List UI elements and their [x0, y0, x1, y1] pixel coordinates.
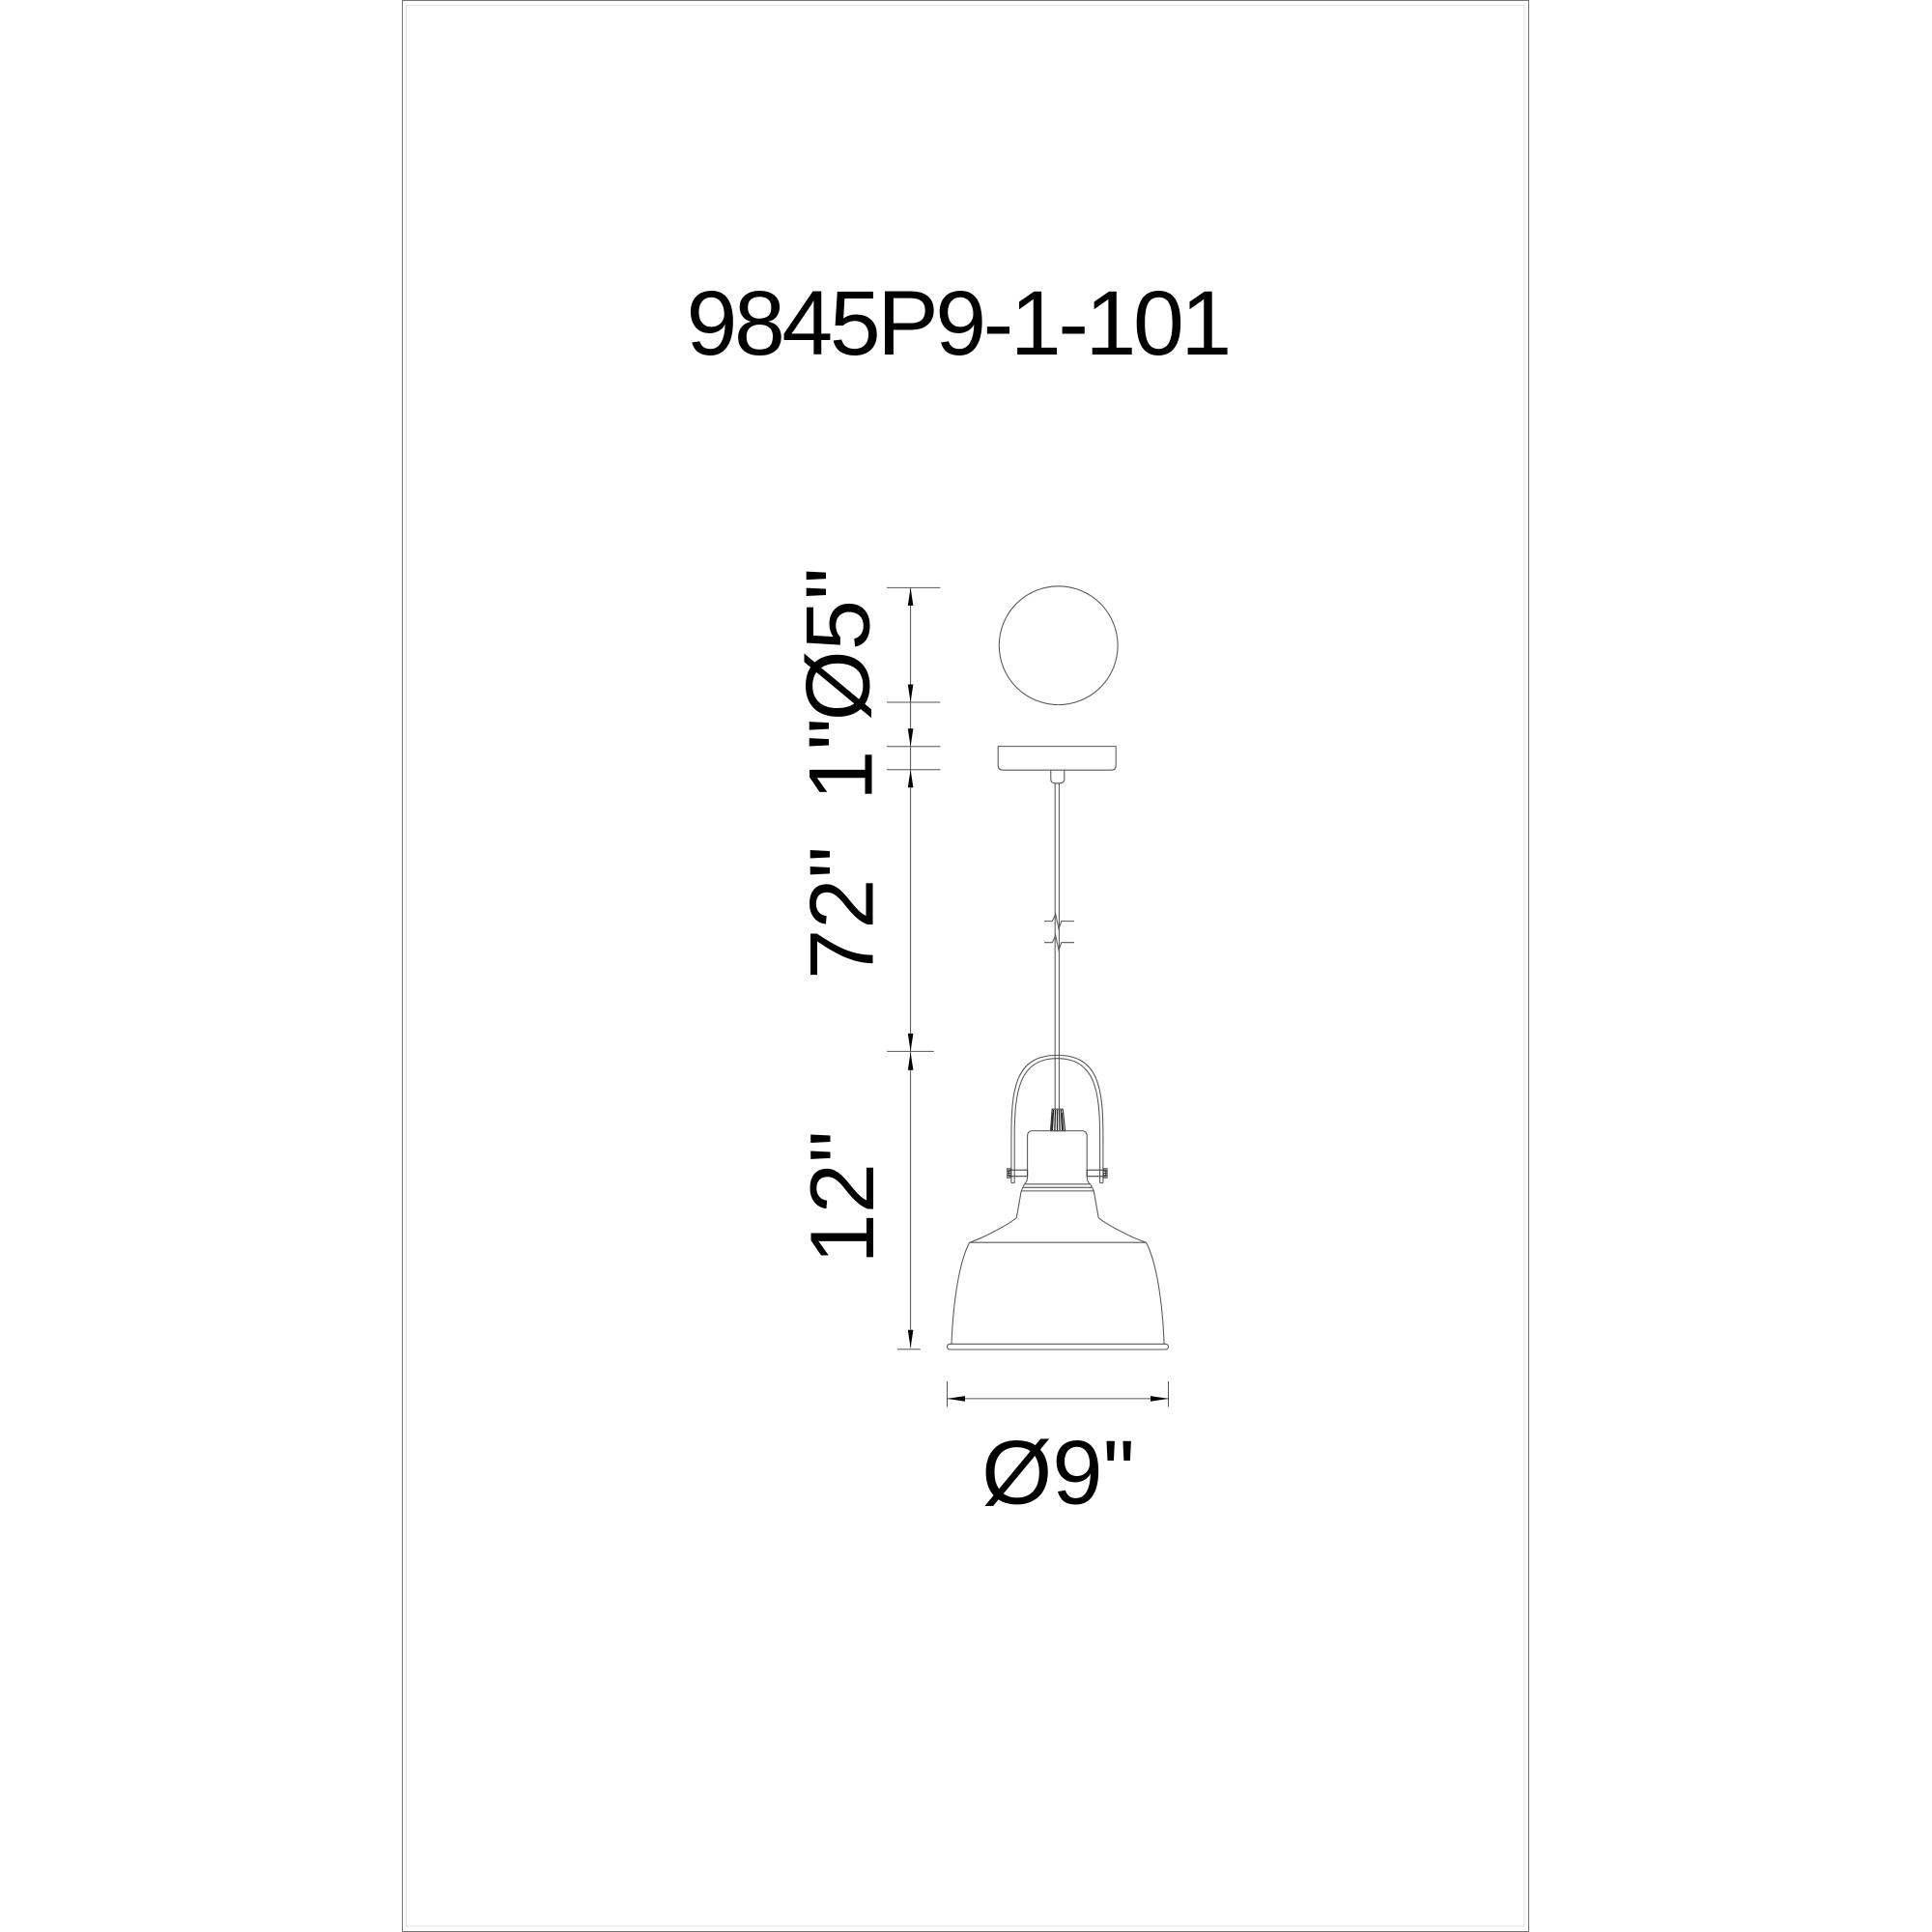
svg-text:12": 12" [791, 1131, 893, 1264]
svg-text:Ø9": Ø9" [981, 1422, 1135, 1523]
svg-text:72": 72" [791, 846, 893, 980]
svg-text:1": 1" [790, 718, 892, 801]
svg-text:9845P9-1-101: 9845P9-1-101 [687, 272, 1229, 375]
svg-text:Ø5": Ø5" [787, 568, 889, 722]
